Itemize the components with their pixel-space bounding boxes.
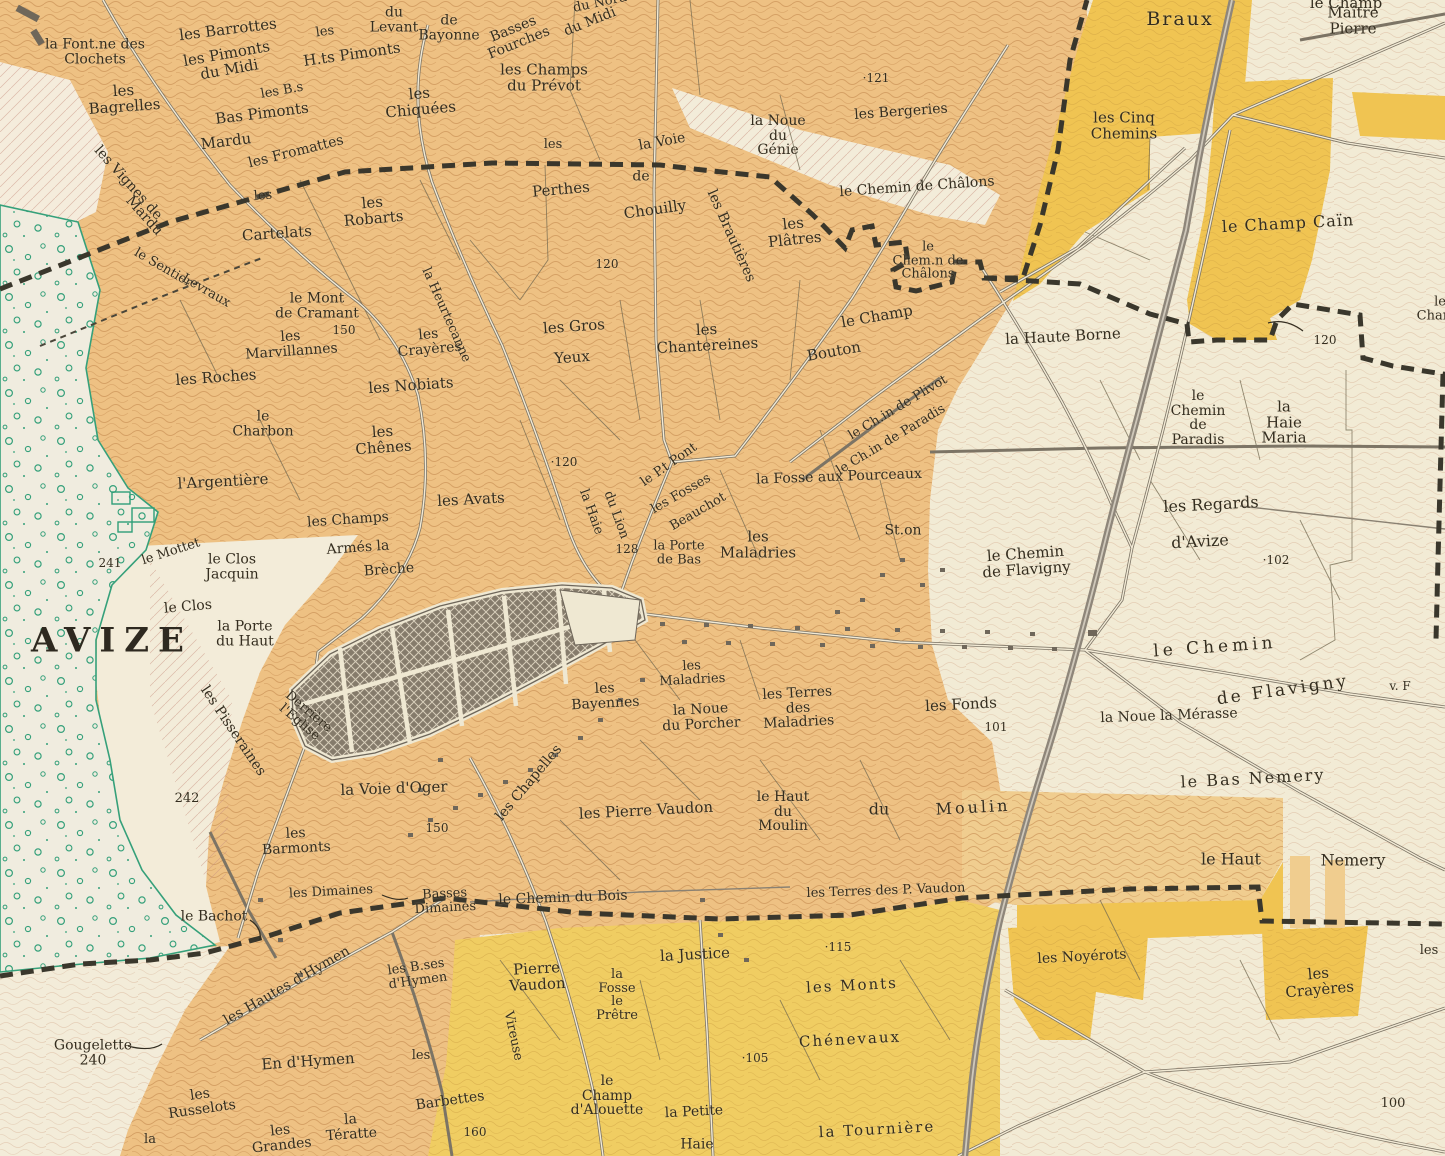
place-label: la Porte du Haut — [216, 619, 274, 648]
place-label: Levraux — [180, 272, 233, 310]
place-label: le Champ Caïn — [1221, 212, 1354, 236]
place-label: la Font.ne des Clochets — [45, 37, 145, 66]
place-label: Perthes — [532, 180, 591, 201]
map-labels: la Font.ne des Clochetsles Barrottesles … — [0, 0, 1445, 1156]
place-label: la Voie d'Oger — [340, 779, 448, 798]
place-label: le Chemin de Châlons — [839, 174, 995, 199]
place-label: de Bayonne — [418, 13, 479, 42]
place-label: la Petite — [664, 1103, 723, 1121]
place-label: du — [869, 802, 890, 819]
place-label: les Bergeries — [854, 101, 948, 122]
place-label: les Chantereines — [655, 320, 758, 356]
place-label: v. F — [1389, 680, 1410, 692]
place-label: les — [544, 138, 563, 152]
place-label: St.on — [884, 524, 921, 539]
place-label: les Marvillannes — [244, 326, 338, 361]
place-label: les Bayennes — [570, 680, 640, 713]
place-label: le Haut — [1201, 852, 1261, 869]
place-label: les Nobiats — [368, 375, 454, 397]
place-label: Yeux — [554, 349, 591, 367]
place-label: Nemery — [1321, 853, 1386, 870]
place-label: le Chemin — [1153, 635, 1277, 661]
place-label: la Fosse aux Pourceaux — [756, 467, 922, 487]
place-label: Derrière l'Eglise — [274, 689, 335, 746]
place-label: les — [315, 24, 335, 40]
place-label: En d'Hymen — [261, 1051, 355, 1073]
place-label: les Hautes d'Hymen — [221, 944, 352, 1028]
place-label: Cartelats — [242, 224, 313, 244]
place-label: le Bas Nemery — [1180, 767, 1326, 791]
spot-height-label: ·120 — [551, 456, 578, 468]
place-label: du Levant — [370, 5, 418, 34]
place-label: Pierre Vaudon — [508, 960, 566, 994]
place-label: le Chemin de Flavigny — [981, 543, 1071, 580]
place-label: de Flavigny — [1216, 673, 1350, 709]
place-label: Vireuse — [501, 1010, 525, 1062]
place-label: les Noyérots — [1037, 947, 1127, 966]
spot-height-label: 100 — [1381, 1097, 1406, 1111]
spot-height-label: 150 — [426, 822, 449, 834]
place-label: le Chemin du Bois — [498, 888, 628, 907]
place-label: les — [412, 1049, 431, 1063]
place-label: le Chemin de Paradis — [1171, 389, 1226, 447]
spot-height-label: 120 — [596, 258, 619, 270]
place-label: le Champ d'Alouette — [571, 1074, 644, 1118]
place-label: les Maladries — [658, 658, 725, 688]
place-label: les Terres des P. Vaudon — [806, 881, 965, 900]
place-label: le Chem.n de Châlons — [893, 241, 964, 282]
place-label: l'Argentière — [177, 472, 269, 492]
place-label: Armés la — [326, 539, 390, 558]
place-label: les Pisseraines — [198, 683, 269, 778]
place-label: les Brautières — [704, 188, 758, 285]
place-label: la Justice — [660, 945, 731, 964]
place-label: Bas Pimonts — [214, 101, 309, 128]
spot-height-label: ·121 — [863, 72, 890, 84]
place-label: la Noue du Génie — [750, 114, 805, 158]
place-label: les — [1420, 944, 1439, 958]
spot-height-label: 160 — [464, 1126, 487, 1138]
spot-height-label: 241 — [99, 557, 122, 569]
place-label: de — [632, 170, 649, 185]
place-label: le Champ — [1417, 295, 1445, 322]
spot-height-label: 128 — [616, 543, 639, 555]
place-label: les — [253, 189, 272, 204]
place-label: la Haute Borne — [1005, 326, 1121, 348]
place-label: les B.ses d'Hymen — [386, 957, 448, 992]
place-label: les Monts — [806, 976, 899, 996]
place-label: Mardu — [200, 131, 252, 153]
place-label: Barbettes — [415, 1089, 486, 1113]
place-label: les Chapelles — [493, 742, 565, 823]
place-label: les Fromattes — [247, 133, 345, 171]
place-label: le Clos — [163, 598, 212, 617]
place-label: Moulin — [935, 798, 1011, 819]
place-label: les Crayères — [396, 325, 462, 360]
place-label: la Tératte — [324, 1111, 377, 1144]
place-label: Haie — [680, 1138, 713, 1153]
place-label: les Cinq Chemins — [1091, 110, 1157, 141]
place-label: les Champs — [307, 510, 390, 530]
spot-height-label: 242 — [175, 792, 200, 806]
place-label: Basses Fourches — [480, 10, 552, 61]
place-label: du Lion — [601, 489, 631, 540]
place-label: Maître Pierre — [1307, 5, 1399, 36]
place-label: les Chiquées — [383, 83, 456, 120]
place-label: le Charbon — [232, 409, 293, 438]
place-label: les Chênes — [354, 422, 412, 457]
place-label: H.ts Pimonts — [302, 40, 401, 69]
place-label: le Mottet — [140, 536, 202, 568]
place-label: les Plâtres — [766, 214, 823, 251]
place-label: le Clos Jacquin — [205, 552, 258, 581]
place-label: les Dimaines — [289, 883, 374, 901]
place-label: la Porte de Bas — [653, 539, 704, 566]
place-label: le Bachot — [181, 910, 248, 925]
spot-height-label: ·105 — [742, 1052, 769, 1064]
place-label: les Gros — [543, 317, 606, 337]
place-label: les Champs du Prévot — [500, 62, 588, 93]
place-label: les Regards — [1163, 494, 1259, 516]
place-label: la Tournière — [818, 1119, 935, 1141]
place-label: les Avats — [437, 490, 505, 509]
place-label: la Noue du Porcher — [661, 700, 741, 733]
place-label: les Maladries — [720, 529, 796, 560]
place-label: la — [144, 1133, 156, 1147]
spot-height-label: 101 — [985, 721, 1008, 733]
place-label: les Barmonts — [261, 825, 331, 858]
place-label: la Voie — [637, 131, 686, 154]
town-name-label: AVIZE — [31, 623, 193, 658]
place-label: les Terres des Maladries — [761, 684, 834, 731]
place-label: Braux — [1146, 10, 1213, 30]
place-label: le Mont de Cramant — [275, 291, 359, 320]
spot-height-label: 120 — [1314, 334, 1337, 346]
place-label: la Noue la Mérasse — [1100, 706, 1238, 725]
place-label: les Fonds — [925, 695, 997, 714]
place-label: la Haie Maria — [1261, 400, 1306, 447]
place-label: les Russelots — [165, 1083, 236, 1121]
place-label: d'Avize — [1171, 532, 1229, 552]
place-label: Brèche — [363, 561, 414, 579]
place-label: les Grandes — [250, 1120, 312, 1155]
place-label: les Roches — [175, 367, 257, 388]
place-label: les Bagrelles — [87, 81, 161, 117]
spot-height-label: ·102 — [1263, 554, 1290, 566]
spot-height-label: ·115 — [825, 941, 852, 953]
place-label: Bouton — [806, 340, 862, 365]
place-label: Gougelette 240 — [54, 1038, 132, 1067]
place-label: les B.s — [260, 81, 305, 102]
place-label: les Pimonts du Midi — [182, 39, 274, 85]
place-label: la Fosse le Prêtre — [596, 968, 638, 1022]
place-label: les Robarts — [342, 193, 404, 229]
place-label: Chouilly — [623, 198, 687, 222]
place-label: le Haut du Moulin — [757, 790, 809, 834]
place-label: les Crayères — [1283, 963, 1354, 1000]
place-label: les Pierre Vaudon — [579, 800, 714, 823]
place-label: le Champ — [840, 303, 914, 331]
place-label: Basses Dimaines — [414, 886, 477, 916]
avize-map: la Font.ne des Clochetsles Barrottesles … — [0, 0, 1445, 1156]
place-label: Chénevaux — [799, 1030, 902, 1051]
